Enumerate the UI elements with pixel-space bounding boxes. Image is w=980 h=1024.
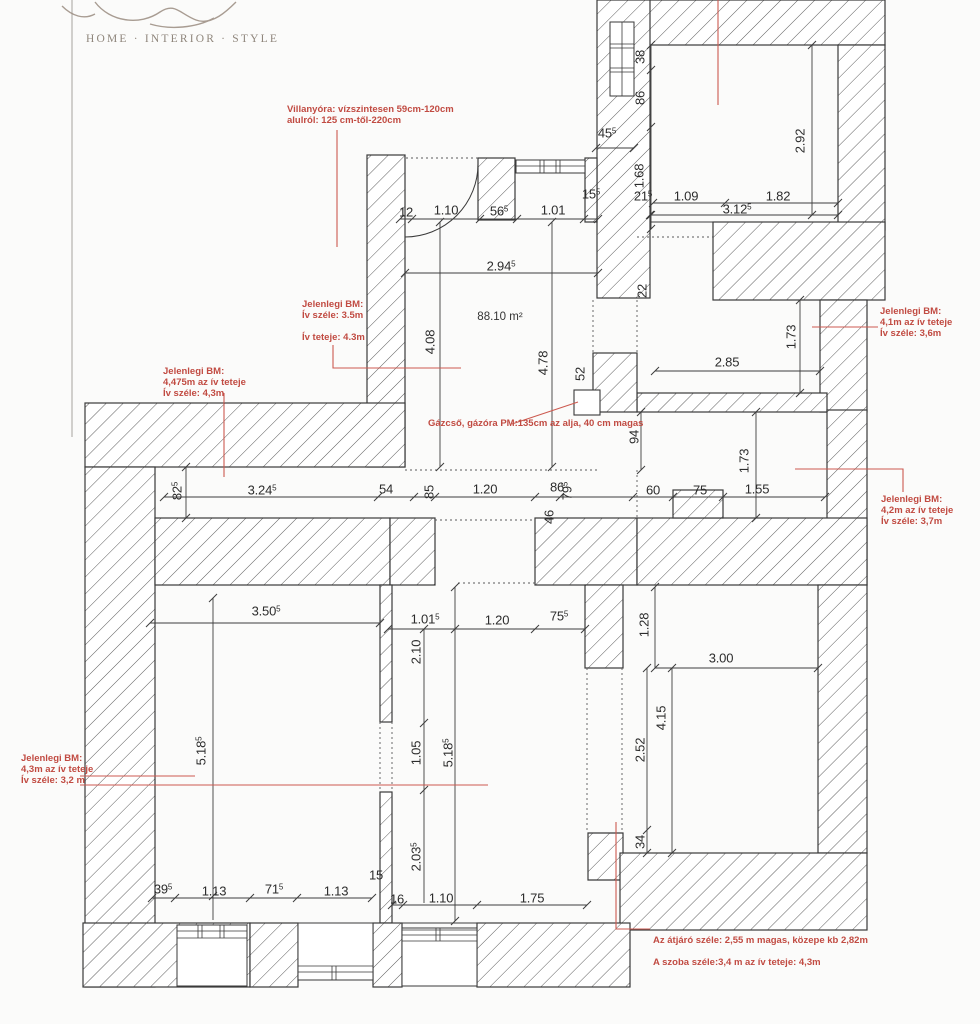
window-bottom-left-1 xyxy=(177,925,247,986)
window-top-right xyxy=(610,22,634,96)
dotted-opening-lines xyxy=(380,158,713,833)
room-area-label: 88.10 m² xyxy=(477,311,522,323)
window-bottom-left-2 xyxy=(298,923,373,980)
floor-plan-drawing xyxy=(0,0,980,1024)
door-swing-arc xyxy=(405,164,478,237)
window-bottom-middle xyxy=(402,928,477,986)
wall-hatch-group xyxy=(83,0,885,987)
logo-script-flourish xyxy=(62,2,236,27)
floor-plan-page: HOME · INTERIOR · STYLE 88.10 m² 4553886… xyxy=(0,0,980,1024)
logo-tagline: HOME · INTERIOR · STYLE xyxy=(86,33,279,45)
window-top-central xyxy=(516,160,585,173)
